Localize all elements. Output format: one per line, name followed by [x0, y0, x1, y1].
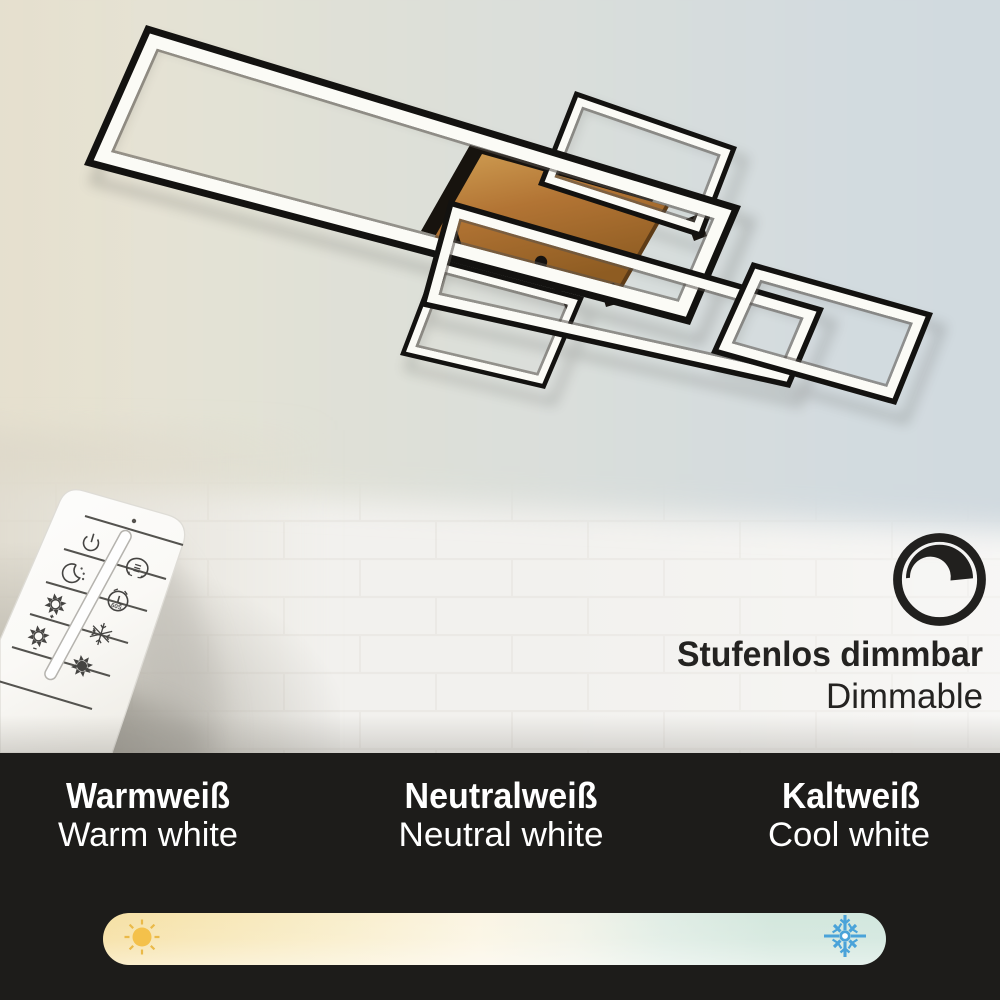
svg-text:Neutralweiß: Neutralweiß — [405, 775, 598, 816]
svg-text:Cool white: Cool white — [768, 816, 930, 854]
svg-text:Neutral white: Neutral white — [399, 816, 604, 854]
svg-text:Kaltweiß: Kaltweiß — [782, 775, 920, 816]
svg-text:Warm white: Warm white — [58, 816, 238, 854]
svg-text:Stufenlos dimmbar: Stufenlos dimmbar — [677, 635, 983, 674]
svg-text:Warmweiß: Warmweiß — [66, 775, 230, 816]
svg-text:Dimmable: Dimmable — [826, 677, 983, 716]
